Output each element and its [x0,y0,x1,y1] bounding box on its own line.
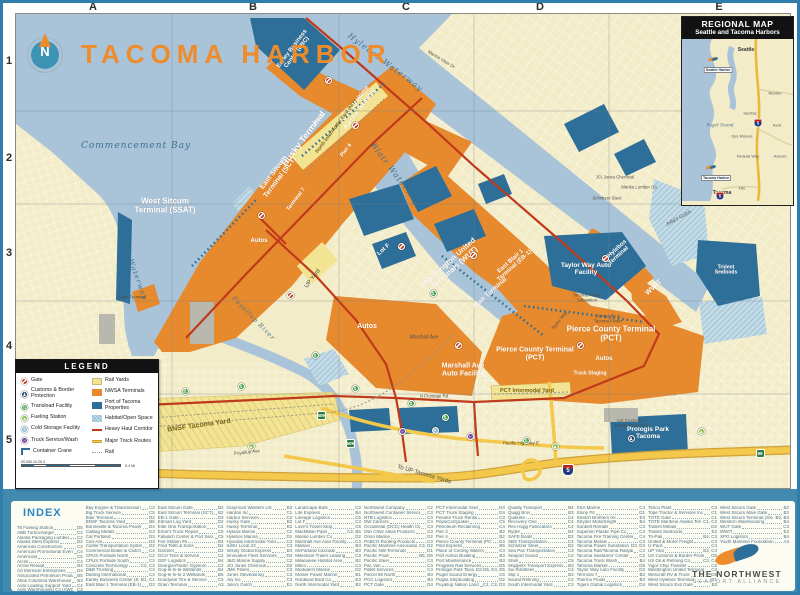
legend-title: LEGEND [16,360,158,373]
dotted-leader [481,528,498,529]
index-column-5: Landscape BarkC3Life ExpressB4Lineage Lo… [295,505,361,588]
dotted-leader [520,576,567,577]
regional-label-renton: Renton [769,91,782,96]
dotted-leader [449,533,499,534]
dotted-leader [257,547,286,548]
index-entry-grain-terminal: Grain TerminalA3 [158,583,224,588]
dotted-leader [142,552,148,553]
regional-map-title: REGIONAL MAP [682,19,793,29]
index-entry-auto-warehousing-co-awc: Auto Warehousing Co (AWC)C4 [17,588,83,593]
dotted-leader [393,581,426,582]
legend-item-container-crane: Container Crane [21,448,92,456]
regional-map-subtitle: Seattle and Tacoma Harbors [682,29,793,36]
grid-row-1: 1 [4,55,14,67]
dotted-leader [416,533,426,534]
heavy-swatch [92,429,102,432]
dotted-leader [346,557,354,558]
dotted-leader [129,566,140,567]
dotted-leader [677,528,710,529]
dotted-leader [485,552,498,553]
index-entry-south-intermodal-yard: South Intermodal YardC3 [508,583,574,588]
dotted-leader [347,542,354,543]
dotted-leader [539,557,567,558]
dotted-leader [757,509,782,510]
dotted-leader [74,577,76,578]
grid-row-5: 5 [4,434,14,446]
scale-bar: 00.050.10.20.3 0.4 Mi [21,460,153,468]
dotted-leader [395,571,426,572]
dotted-leader [470,523,498,524]
dotted-leader [114,518,148,519]
tacoma-harbor-map-page: ABCDE 12345 Commencement BayHylebos Wate… [0,0,800,595]
regional-map-header: REGIONAL MAP Seattle and Tacoma Harbors [682,17,793,39]
wash-icon: ≈ [21,437,28,444]
dotted-leader [333,538,354,539]
compass-rose: N [25,35,65,75]
index-column-9: SSA MarineC4Stony PitD1Stretch Brothers … [577,505,645,588]
legend-label: Heavy Haul Corridor [105,427,153,433]
index-entry-ref: B2 [355,583,361,588]
dotted-leader [116,533,149,534]
dotted-leader [538,523,567,524]
regional-i5-shield-icon: 5 [754,119,762,127]
index-entry-ref: A3 [218,583,224,588]
index-entry-ref: E1 [287,583,293,588]
dotted-leader [188,586,217,587]
regional-i5-shield-icon: 5 [716,192,724,200]
dotted-leader [272,552,285,553]
index-entry-ref: D4 [639,583,645,588]
regional-label-kent: Kent [773,123,781,128]
dotted-leader [332,581,354,582]
grid-row-3: 3 [4,247,14,259]
grid-col-C: C [396,1,416,13]
index-entry-east-blair-1-terminal-eb-1: East Blair 1 Terminal (EB-1)D3 [86,583,155,588]
dotted-leader [259,538,286,539]
dotted-leader [74,553,76,554]
dotted-leader [564,566,567,567]
dotted-leader [673,509,711,510]
dotted-leader [256,533,285,534]
dotted-leader [694,586,711,587]
dotted-leader [175,552,216,553]
dotted-leader [265,576,286,577]
dotted-leader [267,566,285,567]
dotted-leader [202,571,217,572]
nwsa-logo-line2: SEAPORT ALLIANCE [689,579,785,585]
grid-row-4: 4 [4,340,14,352]
grid-row-2: 2 [4,152,14,164]
dotted-leader [521,533,567,534]
dotted-leader [519,562,567,563]
index-entry-julia-s-gulch: Julia's GulchE1 [226,583,292,588]
dotted-leader [623,586,638,587]
dotted-leader [194,509,217,510]
legend-item-gate: Gate [21,377,92,385]
dotted-leader [733,533,782,534]
dotted-leader [200,557,216,558]
regional-label-tacoma-harbor: Tacoma Harbor [701,175,731,181]
dotted-leader [535,571,566,572]
transload-icon: ⇅ [21,404,28,411]
index-column-8: Quality TransportB4Quigg BrosB3QuikreteC… [508,505,574,588]
dotted-leader [609,566,639,567]
dotted-leader [480,586,482,587]
dotted-leader [343,562,354,563]
dotted-leader [340,586,354,587]
nwsa-logo-icon [715,543,759,567]
dotted-leader [385,586,426,587]
legend-label: Truck Service/Wash [31,438,78,444]
scale-end-label: 0.4 Mi [125,464,135,468]
index-entry-ref: D3 [149,583,155,588]
port-swatch [92,402,102,409]
index-entry-name: Tigers Global Logistics [577,583,622,588]
dotted-leader [187,562,217,563]
index-entry-ref: C2, C3, D3 [483,583,505,588]
habitat-swatch [92,415,102,422]
regional-label-puget-sound: Puget Sound [706,123,733,128]
dotted-leader [476,557,498,558]
dotted-leader [67,572,76,573]
dotted-leader [54,529,76,530]
index-entry-tigers-global-logistics: Tigers Global LogisticsD4 [577,583,645,588]
index-column-6: Northwest CompanyC2Northwest Container S… [364,505,433,588]
dotted-leader [328,533,346,534]
dotted-leader [249,514,285,515]
index-entry-puyallup-nation-land: Puyallup Nation LandC2, C3, D3 [436,583,505,588]
dotted-leader [663,538,702,539]
index-entry-name: Auto Warehousing Co (AWC) [17,588,73,593]
legend-item-cold-storage-facility: ❄Cold Storage Facility [21,425,92,433]
dotted-leader [493,542,498,543]
dotted-leader [627,533,638,534]
dotted-leader [539,547,567,548]
crane-icon [21,448,30,455]
index-entry-name: West Sitcum Exit Gate [648,583,693,588]
dotted-leader [478,576,498,577]
fuel-icon: ▲ [21,415,28,422]
index-column-4: Graymont Western USB3Hardan IncC1Harbor … [226,505,292,588]
dotted-leader [215,538,217,539]
dotted-leader [122,514,148,515]
legend-label: Fueling Station [31,415,66,421]
dotted-leader [617,523,638,524]
dotted-leader [199,533,217,534]
legend-label: NWSA Terminals [105,389,145,395]
dotted-leader [72,586,76,587]
dotted-leader [103,542,148,543]
dotted-leader [533,538,566,539]
dotted-leader [307,566,354,567]
dotted-leader [393,518,426,519]
regional-map-inset: REGIONAL MAP Seattle and Tacoma Harbors … [681,16,794,206]
terminal-swatch [92,389,102,396]
regional-map-body: SeattleSeattle HarborRentonSeaTacPuget S… [682,39,793,201]
index-entry-name: Julia's Gulch [226,583,251,588]
building-1 [190,302,214,344]
dotted-leader [277,542,286,543]
rail-swatch [92,452,102,453]
dotted-leader [188,542,217,543]
dotted-leader [38,558,76,559]
dotted-leader [253,586,286,587]
legend-label: Rail Yards [105,378,129,384]
cold-icon: ❄ [21,426,28,433]
nwsa-logo-line1: THE NORTHWEST [689,569,785,579]
index-column-3: East Sitcum GateB2East Sitcum Terminal (… [158,505,224,588]
dotted-leader [449,538,499,539]
dotted-leader [553,528,567,529]
index-column-7: PCT Intermodal YardD4PCT Truck StagingD4… [436,505,505,588]
dotted-leader [472,562,498,563]
index-column-2: Bay Engine & TransmissionC3Big Truck Ser… [86,505,155,588]
regional-label-des-moines: Des Moines [731,134,752,139]
grid-col-D: D [530,1,550,13]
dotted-leader [251,523,286,524]
dotted-leader [617,518,638,519]
dotted-leader [278,557,286,558]
dotted-leader [618,562,638,563]
dotted-leader [382,566,427,567]
dotted-leader [526,518,567,519]
legend-item-port-of-tacoma-properties: Port of Tacoma Properties [92,400,155,412]
regional-label-auburn: Auburn [774,154,787,159]
gate-icon [21,378,28,385]
dotted-leader [596,514,639,515]
index-entry-name: South Intermodal Yard [508,583,553,588]
dotted-leader [70,538,76,539]
dotted-leader [338,576,354,577]
dotted-leader [273,509,286,510]
dotted-leader [634,538,639,539]
dotted-leader [479,509,498,510]
page-title: TACOMA HARBOR [81,39,392,70]
grid-col-E: E [709,1,729,13]
grid-col-A: A [83,1,103,13]
legend-item-major-truck-routes: Major Truck Routes [92,438,155,446]
regional-label-seatac: SeaTac [743,111,756,116]
dotted-leader [242,581,286,582]
legend-label: Customs & Border Protection [31,388,92,400]
dotted-leader [390,523,426,524]
legend-label: Gate [31,378,42,384]
dotted-leader [72,582,76,583]
dotted-leader [390,562,426,563]
dotted-leader [630,557,638,558]
dotted-leader [311,547,354,548]
dotted-leader [742,528,782,529]
legend-label: Transload Facility [31,404,72,410]
dotted-leader [208,566,217,567]
dotted-leader [475,514,499,515]
dotted-leader [55,534,76,535]
dotted-leader [749,538,782,539]
legend-item-customs-border-protection: ♟Customs & Border Protection [21,388,92,400]
yard-swatch [92,378,102,385]
compass-north-letter: N [25,44,65,59]
dotted-leader [112,538,148,539]
regional-label-fife: Fife [739,186,746,191]
dotted-leader [606,581,638,582]
dotted-leader [260,518,286,519]
customs-icon: ♟ [21,391,28,398]
dotted-leader [543,509,567,510]
dotted-leader [195,547,217,548]
dotted-leader [64,548,76,549]
legend-label: Port of Tacoma Properties [105,400,155,412]
dotted-leader [531,514,567,515]
index-columns: 76 Fueling StationD5ABB TurbochargerC4Al… [17,505,789,588]
dotted-leader [142,509,148,510]
nwsa-logo: THE NORTHWEST SEAPORT ALLIANCE [689,543,785,585]
legend-point-items: Gate♟Customs & Border Protection⇅Translo… [21,377,92,457]
dotted-leader [601,509,638,510]
dotted-leader [126,523,148,524]
dotted-leader [143,528,148,529]
regional-map-shapes [682,39,793,201]
dotted-leader [258,528,286,529]
grid-col-B: B [243,1,263,13]
scale-bar-segments [21,464,121,468]
dotted-leader [540,581,567,582]
index-entry-name: Puyallup Nation Land [436,583,479,588]
regional-label-seattle-harbor: Seattle Harbor [704,67,733,73]
legend-label: Habitat/Open Space [105,416,153,422]
dotted-leader [329,509,354,510]
dotted-leader [60,543,76,544]
dotted-leader [321,514,354,515]
legend-label: Container Crane [33,449,72,455]
dotted-leader [143,547,148,548]
index-entry-ref: C4 [77,588,83,593]
dotted-leader [45,567,76,568]
dotted-leader [192,523,217,524]
legend-item-transload-facility: ⇅Transload Facility [21,403,92,411]
regional-label-federal-way: Federal Way [737,154,760,159]
legend-item-nwsa-terminals: NWSA Terminals [92,388,155,396]
dotted-leader [336,552,354,553]
foss-shore-property [116,212,132,304]
dotted-leader [609,528,638,529]
dotted-leader [129,557,148,558]
dotted-leader [331,571,354,572]
index-title: INDEX [23,507,62,519]
dotted-leader [207,528,216,529]
dotted-leader [704,514,710,515]
dotted-leader [142,586,148,587]
dotted-leader [556,552,567,553]
dotted-leader [114,571,148,572]
legend-label: Rail [105,450,114,456]
legend-item-rail-yards: Rail Yards [92,377,155,385]
dotted-leader [206,576,217,577]
dotted-leader [548,542,567,543]
legend-label: Cold Storage Facility [31,426,80,432]
legend-item-rail: Rail [92,449,155,457]
dotted-leader [421,528,426,529]
index-entry-ref: C3 [568,583,574,588]
index-entry-name: Grain Terminal [158,583,187,588]
legend-label: Major Truck Routes [105,439,151,445]
dotted-leader [29,562,76,563]
index-entry-ref: D4 [427,583,433,588]
legend-panel: LEGEND Gate♟Customs & Border Protection⇅… [15,359,159,489]
dotted-leader [421,514,426,515]
dotted-leader [180,518,217,519]
index-entry-pct-gate: PCT GateD4 [364,583,433,588]
index-entry-name: East Blair 1 Terminal (EB-1) [86,583,141,588]
index-entry-north-intermodal-yard: North Intermodal YardB2 [295,583,361,588]
scale-tick: 0.3 [40,460,45,464]
dotted-leader [306,523,354,524]
legend-item-truck-service-wash: ≈Truck Service/Wash [21,437,92,445]
dotted-leader [478,518,498,519]
index-panel: INDEX 76 Fueling StationD5ABB Turbocharg… [11,501,795,591]
dotted-leader [625,571,638,572]
dotted-leader [331,518,354,519]
dotted-leader [634,552,639,553]
regional-label-seattle: Seattle [738,47,754,53]
dotted-leader [396,576,426,577]
puget-sound-inlet [730,47,733,109]
scale-tick: 0.05 [23,460,30,464]
building-2 [99,314,115,344]
dotted-leader [598,576,638,577]
dotted-leader [214,514,217,515]
dotted-leader [390,557,418,558]
dotted-leader [266,562,285,563]
truck-swatch [92,440,102,443]
dotted-leader [463,547,498,548]
legend-item-heavy-haul-corridor: Heavy Haul Corridor [92,426,155,434]
seattle-harbor-logo-icon [708,57,718,63]
index-entry-name: North Intermodal Yard [295,583,339,588]
legend-item-fueling-station: ▲Fueling Station [21,414,92,422]
index-entry-name: PCT Gate [364,583,384,588]
dotted-leader [250,571,285,572]
dotted-leader [554,586,567,587]
legend-item-habitat-open-space: Habitat/Open Space [92,415,155,423]
dotted-leader [208,581,217,582]
tacoma-harbor-logo-icon [706,165,716,171]
dotted-leader [765,523,782,524]
legend-area-items: Rail YardsNWSA TerminalsPort of Tacoma P… [92,377,155,457]
dotted-leader [391,538,426,539]
dotted-leader [406,509,426,510]
